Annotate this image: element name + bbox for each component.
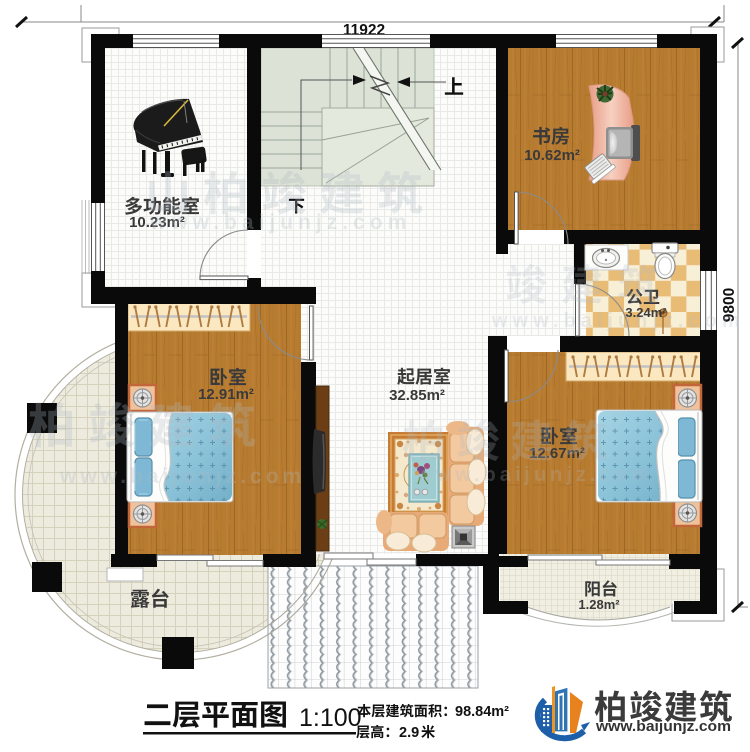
svg-text:www.baijunjz.com: www.baijunjz.com xyxy=(59,465,305,488)
svg-text:1:100: 1:100 xyxy=(299,704,362,732)
svg-text:www.baijunjz.com: www.baijunjz.com xyxy=(415,464,653,486)
svg-text:1.28m²: 1.28m² xyxy=(578,597,620,612)
svg-text:12.91m²: 12.91m² xyxy=(198,386,254,403)
svg-text:www.baijunjz.com: www.baijunjz.com xyxy=(491,310,745,332)
svg-text:32.85m²: 32.85m² xyxy=(389,387,445,404)
svg-text:www.baijunjz.com: www.baijunjz.com xyxy=(149,211,411,234)
svg-text:98.84m²: 98.84m² xyxy=(455,704,509,720)
svg-text:10.62m²: 10.62m² xyxy=(524,147,580,164)
svg-text:www.baijunjz.com: www.baijunjz.com xyxy=(595,718,731,735)
svg-text:2.9: 2.9 xyxy=(399,725,419,741)
